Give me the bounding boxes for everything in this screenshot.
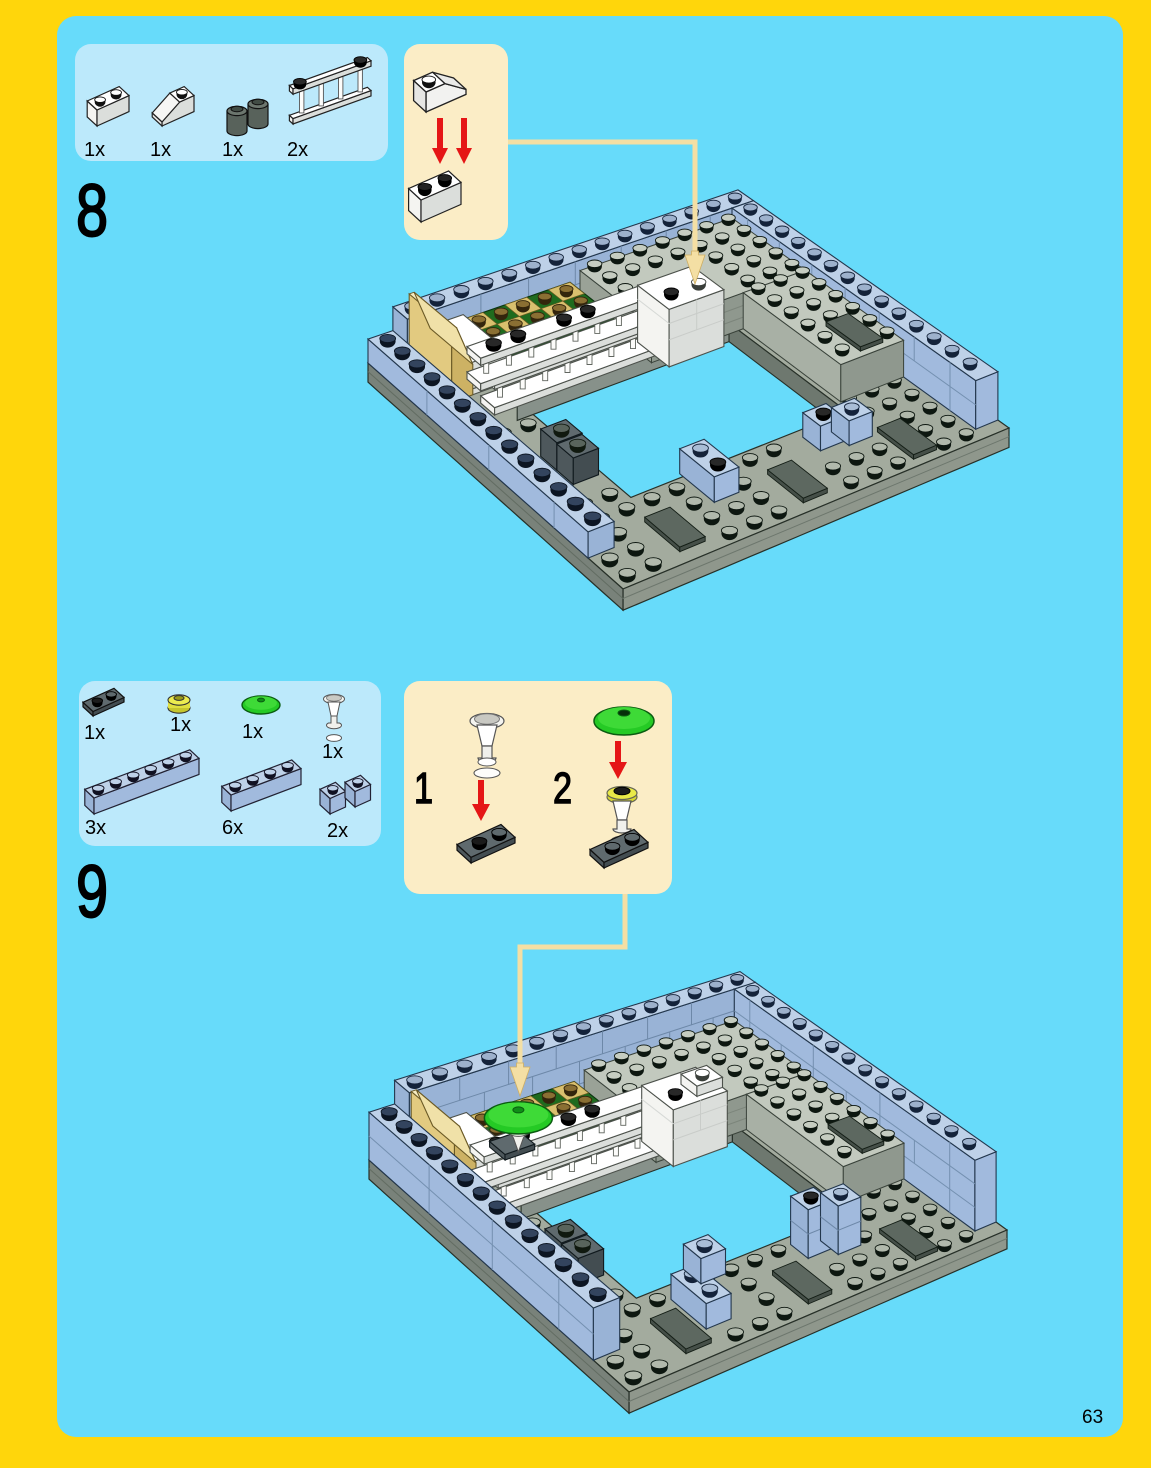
svg-text:63: 63	[1082, 1407, 1103, 1428]
svg-text:8: 8	[76, 170, 108, 253]
svg-text:6x: 6x	[222, 817, 243, 839]
svg-text:1x: 1x	[322, 741, 343, 763]
svg-text:1x: 1x	[242, 721, 263, 743]
svg-text:1x: 1x	[150, 139, 171, 161]
svg-text:1x: 1x	[84, 139, 105, 161]
svg-text:2: 2	[553, 764, 572, 813]
svg-text:1: 1	[414, 764, 433, 813]
svg-text:2x: 2x	[327, 820, 348, 842]
svg-text:9: 9	[76, 851, 108, 934]
svg-text:1x: 1x	[84, 722, 105, 744]
svg-text:2x: 2x	[287, 139, 308, 161]
svg-text:1x: 1x	[222, 139, 243, 161]
svg-text:3x: 3x	[85, 817, 106, 839]
svg-text:1x: 1x	[170, 714, 191, 736]
